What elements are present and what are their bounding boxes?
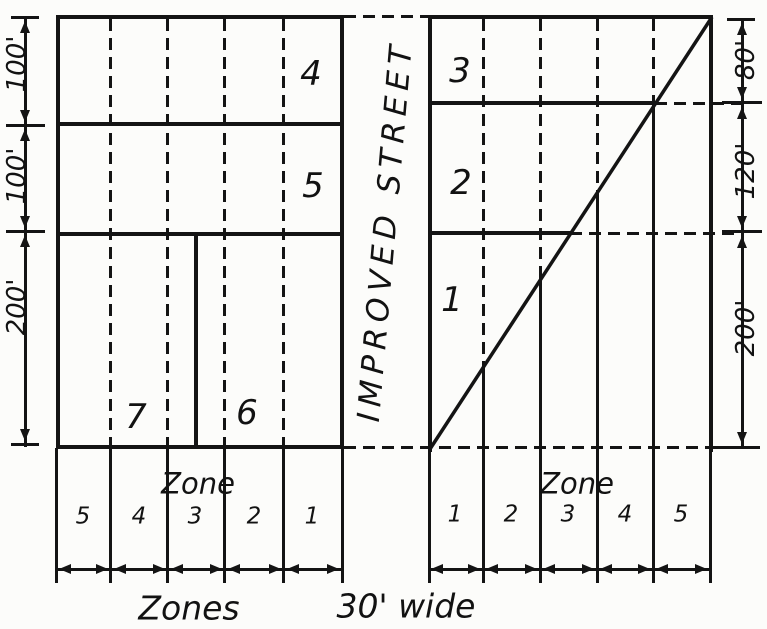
arrow-up-icon — [737, 236, 747, 248]
arrow-right-icon — [210, 564, 222, 574]
arrow-left-icon — [431, 564, 443, 574]
arrow-up-icon — [737, 107, 747, 119]
arrow-down-icon — [737, 432, 747, 444]
arrow-left-icon — [228, 564, 240, 574]
zone-header: Zone — [540, 470, 614, 499]
arrow-left-icon — [656, 564, 668, 574]
arrow-right-icon — [153, 564, 165, 574]
arrow-right-icon — [468, 564, 480, 574]
arrow-right-icon — [96, 564, 108, 574]
depth-label: 80' — [733, 40, 759, 80]
zone-width-caption: 30' wide — [337, 590, 476, 623]
zone-scale-divider — [709, 448, 712, 583]
arrow-right-icon — [525, 564, 537, 574]
zone-number: 1 — [305, 506, 320, 529]
arrow-right-icon — [695, 564, 707, 574]
dimension-tick — [727, 18, 755, 21]
arrow-right-icon — [327, 564, 339, 574]
zone-number: 2 — [247, 506, 262, 529]
zone-number: 1 — [448, 504, 463, 527]
dimension-line — [741, 19, 744, 449]
zone-number: 4 — [132, 506, 147, 529]
zone-number: 3 — [561, 504, 576, 527]
zone-number: 3 — [188, 506, 203, 529]
arrow-left-icon — [114, 564, 126, 574]
arrow-left-icon — [486, 564, 498, 574]
zone-scale-divider — [109, 448, 112, 583]
zoning-diagram: 100' 100' 200' 4 5 7 6 IMPROVED STREET — [0, 0, 767, 629]
zone-scale-divider — [341, 448, 344, 583]
arrow-left-icon — [543, 564, 555, 574]
zone-scale-divider — [652, 448, 655, 583]
arrow-down-icon — [737, 216, 747, 228]
dimension-tick — [722, 230, 762, 233]
zone-scale-divider — [482, 448, 485, 583]
zone-header: Zone — [161, 470, 235, 499]
arrow-left-icon — [287, 564, 299, 574]
zone-number: 5 — [76, 506, 91, 529]
zone-number: 5 — [674, 504, 689, 527]
zone-scale-divider — [428, 448, 431, 583]
arrow-left-icon — [600, 564, 612, 574]
arrow-left-icon — [59, 564, 71, 574]
arrow-down-icon — [737, 87, 747, 99]
arrow-up-icon — [737, 23, 747, 35]
depth-label: 200' — [733, 300, 759, 357]
arrow-left-icon — [171, 564, 183, 574]
dimension-tick — [713, 446, 760, 449]
zones-caption: Zones — [138, 592, 239, 625]
zone-scale-divider — [282, 448, 285, 583]
arrow-right-icon — [269, 564, 281, 574]
zone-number: 2 — [504, 504, 519, 527]
zone-scale-divider — [55, 448, 58, 583]
zone-number: 4 — [618, 504, 633, 527]
arrow-right-icon — [638, 564, 650, 574]
arrow-right-icon — [582, 564, 594, 574]
depth-label: 120' — [733, 143, 759, 200]
dimension-tick — [722, 101, 762, 104]
